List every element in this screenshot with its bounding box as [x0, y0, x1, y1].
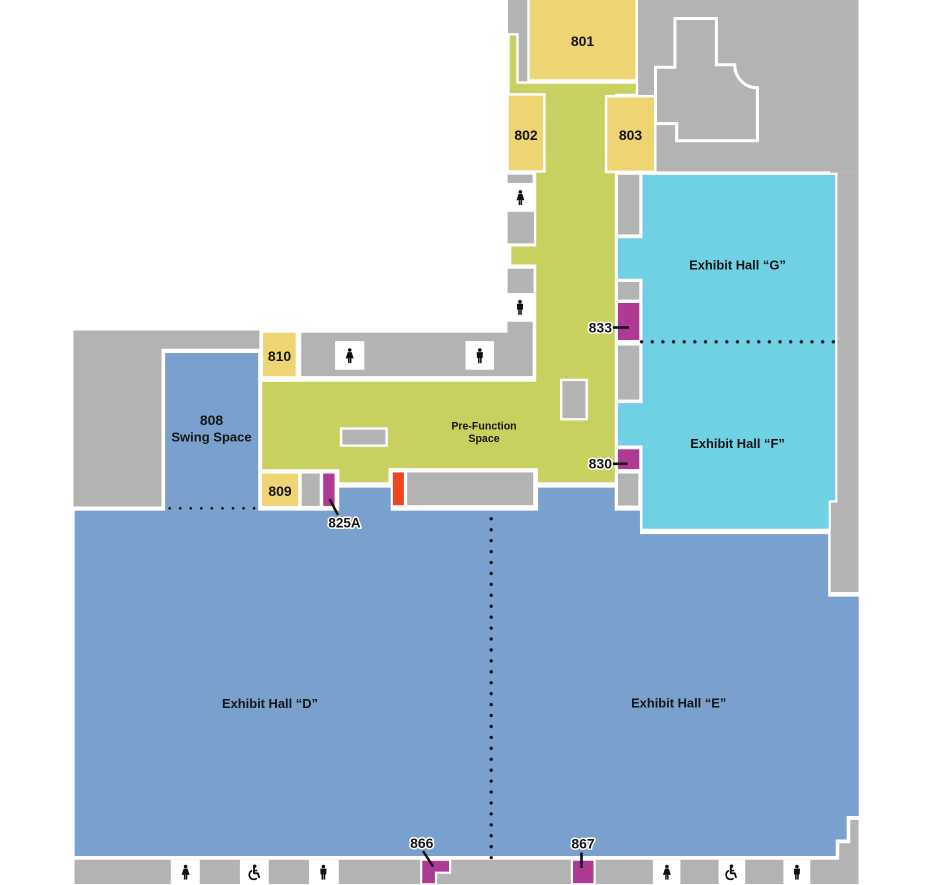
svg-text:809: 809	[268, 483, 292, 499]
svg-text:Exhibit Hall “G”: Exhibit Hall “G”	[689, 258, 786, 273]
svg-text:867: 867	[571, 836, 595, 852]
svg-text:803: 803	[619, 127, 643, 143]
svg-text:Swing Space: Swing Space	[171, 430, 251, 445]
svg-text:Exhibit Hall “D”: Exhibit Hall “D”	[222, 696, 318, 711]
svg-text:866: 866	[410, 835, 434, 851]
svg-text:Pre-Function: Pre-Function	[451, 420, 516, 432]
svg-text:802: 802	[514, 127, 538, 143]
svg-text:825A: 825A	[328, 515, 361, 530]
svg-text:810: 810	[268, 348, 292, 364]
svg-text:830: 830	[589, 456, 613, 472]
svg-text:Exhibit Hall “F”: Exhibit Hall “F”	[690, 436, 785, 451]
svg-text:Exhibit Hall “E”: Exhibit Hall “E”	[631, 696, 726, 711]
svg-text:808: 808	[200, 412, 224, 428]
svg-text:Space: Space	[468, 433, 499, 445]
svg-text:833: 833	[589, 320, 613, 336]
svg-text:801: 801	[571, 33, 595, 49]
